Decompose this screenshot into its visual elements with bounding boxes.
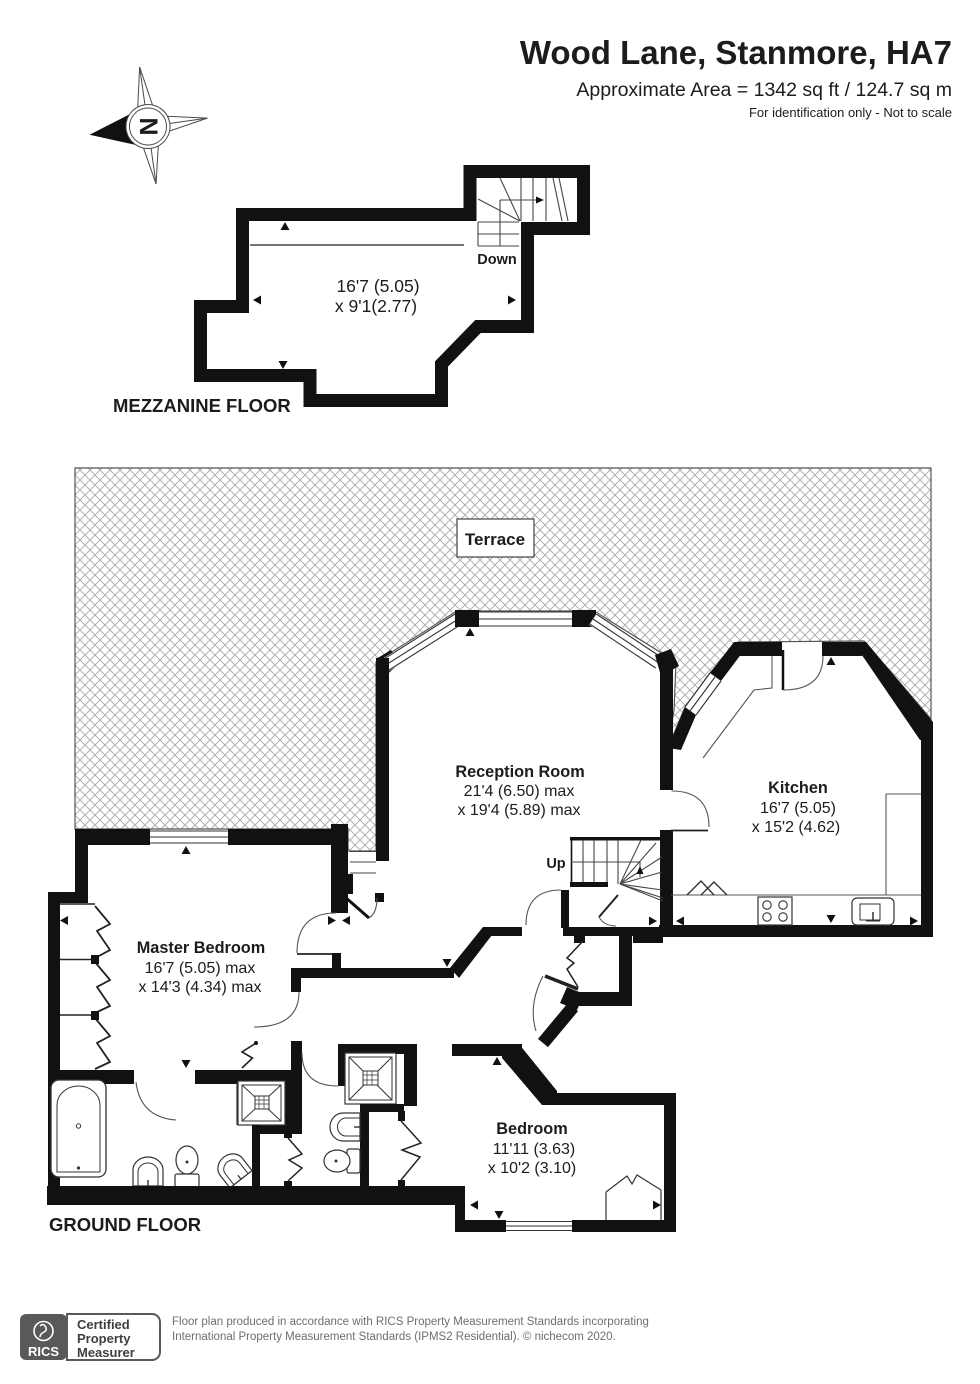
svg-text:GROUND FLOOR: GROUND FLOOR xyxy=(49,1214,201,1235)
svg-text:RICS: RICS xyxy=(28,1344,59,1359)
svg-text:Kitchen: Kitchen xyxy=(768,779,828,797)
svg-text:Wood Lane, Stanmore, HA7: Wood Lane, Stanmore, HA7 xyxy=(520,34,952,71)
svg-text:16'7 (5.05): 16'7 (5.05) xyxy=(336,276,419,296)
svg-text:Bedroom: Bedroom xyxy=(496,1120,567,1138)
svg-text:For identification only - Not: For identification only - Not to scale xyxy=(749,105,952,120)
svg-text:Reception Room: Reception Room xyxy=(455,763,584,781)
svg-text:Floor plan produced in accorda: Floor plan produced in accordance with R… xyxy=(172,1316,649,1328)
svg-text:N: N xyxy=(134,117,162,135)
svg-text:x 9'1(2.77): x 9'1(2.77) xyxy=(335,296,417,316)
svg-text:Property: Property xyxy=(77,1331,131,1346)
svg-text:Down: Down xyxy=(477,252,516,268)
svg-text:x 10'2 (3.10): x 10'2 (3.10) xyxy=(488,1160,576,1177)
svg-text:Up: Up xyxy=(546,856,565,872)
svg-text:Terrace: Terrace xyxy=(465,530,525,549)
svg-text:x 15'2 (4.62): x 15'2 (4.62) xyxy=(752,819,840,836)
svg-text:11'11 (3.63): 11'11 (3.63) xyxy=(493,1141,576,1158)
svg-text:International Property Measure: International Property Measurement Stand… xyxy=(172,1331,616,1343)
svg-text:Certified: Certified xyxy=(77,1317,130,1332)
svg-text:Measurer: Measurer xyxy=(77,1345,135,1360)
svg-text:x 19'4 (5.89) max: x 19'4 (5.89) max xyxy=(457,802,580,819)
svg-text:Master Bedroom: Master Bedroom xyxy=(137,939,265,957)
svg-text:21'4 (6.50) max: 21'4 (6.50) max xyxy=(464,783,575,800)
svg-text:Approximate Area = 1342 sq ft: Approximate Area = 1342 sq ft / 124.7 sq… xyxy=(576,79,952,101)
svg-text:x 14'3 (4.34) max: x 14'3 (4.34) max xyxy=(138,979,261,996)
svg-text:16'7 (5.05) max: 16'7 (5.05) max xyxy=(145,960,256,977)
svg-text:MEZZANINE FLOOR: MEZZANINE FLOOR xyxy=(113,395,291,416)
svg-text:16'7 (5.05): 16'7 (5.05) xyxy=(760,800,836,817)
